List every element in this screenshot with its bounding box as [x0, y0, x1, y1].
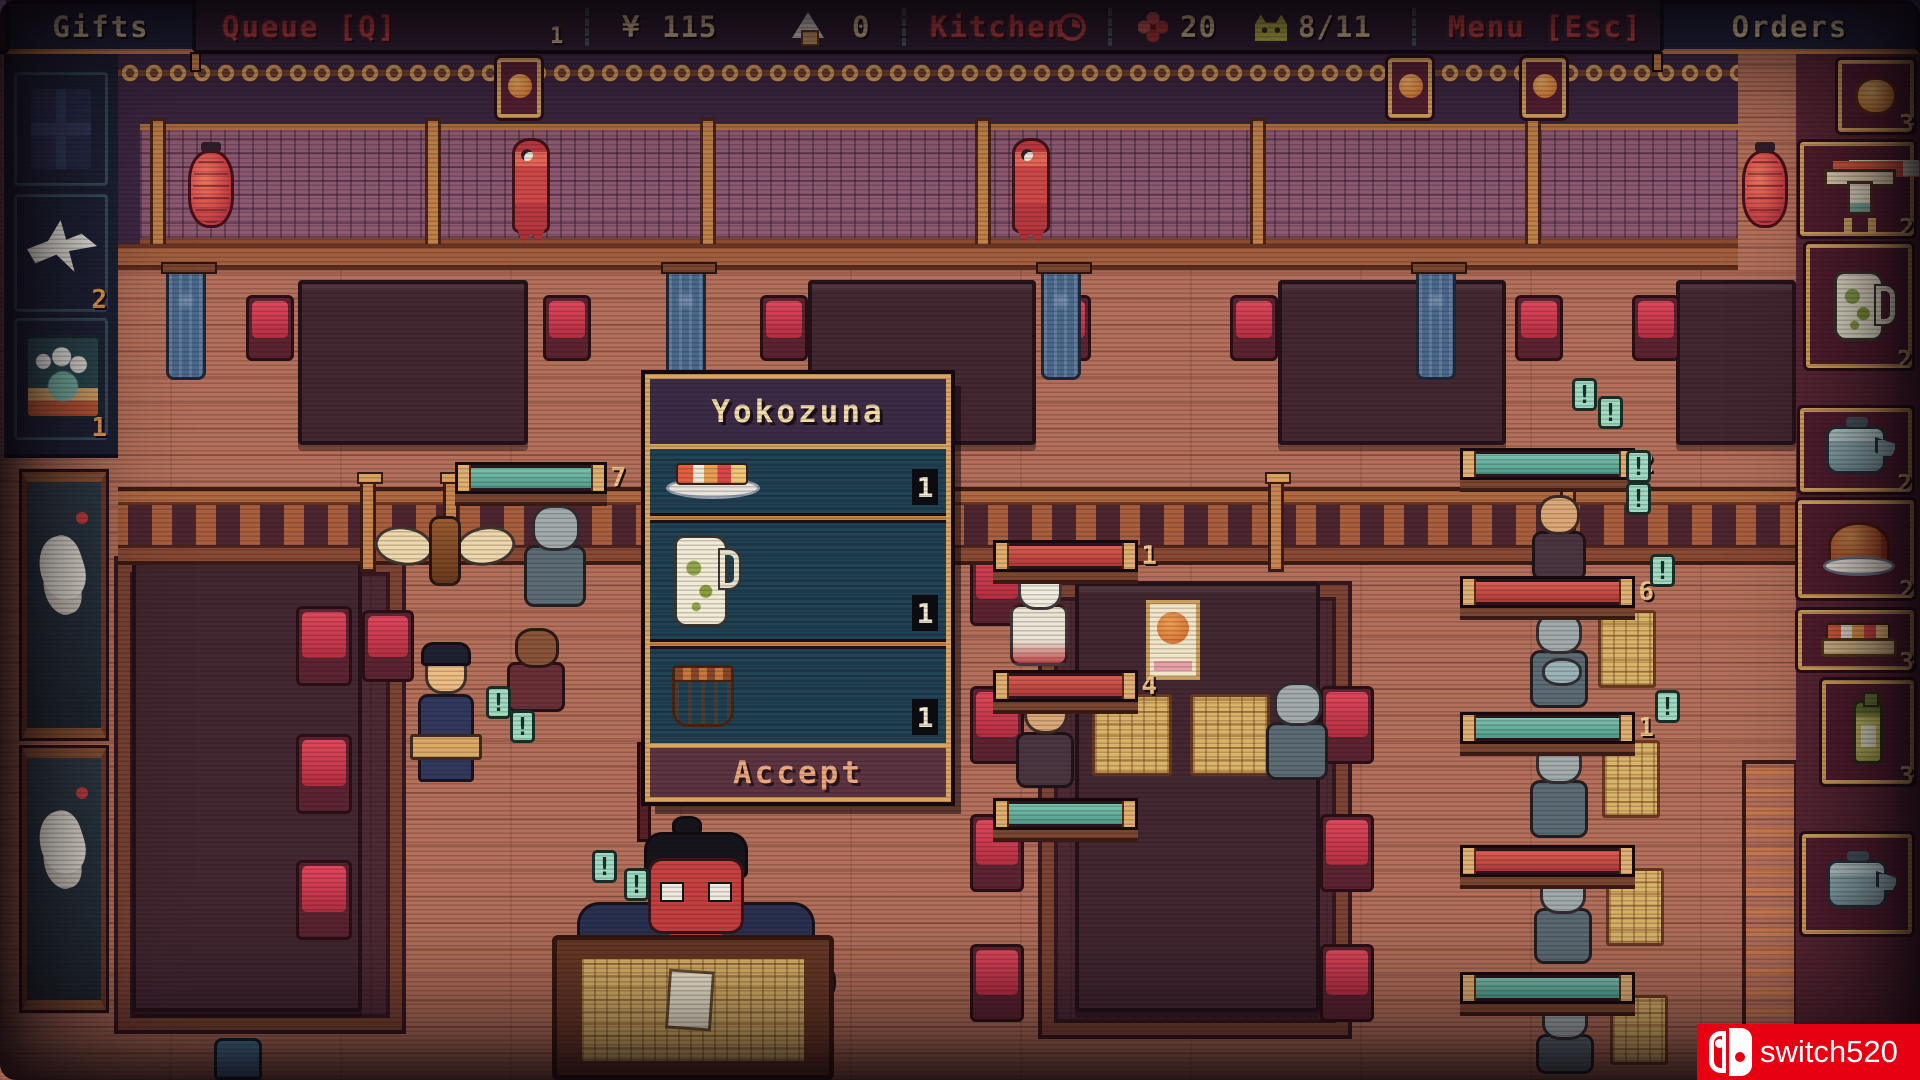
sushi-platter-icon: [1821, 623, 1891, 657]
tatami-mat: [1606, 868, 1664, 946]
red-chair: [296, 860, 352, 940]
red-chair: [246, 295, 294, 361]
tab-hook: [1652, 52, 1663, 72]
patience-bar: 1: [1460, 712, 1635, 744]
order-count: 2: [1899, 213, 1914, 242]
tab-hook: [190, 52, 201, 72]
divider: [1108, 8, 1112, 46]
tatami-mat: [1602, 740, 1660, 818]
queue-button[interactable]: Queue [Q]: [222, 10, 397, 44]
sake-bottle-icon: [1853, 700, 1883, 764]
counter-table: [1460, 972, 1635, 1004]
pitcher-icon: [1834, 271, 1884, 341]
boss-eye: [708, 882, 732, 902]
lattice-screen: [140, 124, 1738, 246]
wood-post: [425, 118, 441, 252]
tatami-mat: [1610, 995, 1668, 1065]
order-count: 3: [1899, 761, 1914, 790]
grey-oni-customer: [1262, 682, 1334, 782]
patience-bar: 4: [993, 670, 1138, 702]
order-item-row: 1: [650, 523, 946, 639]
exclamation-mark: !: [1572, 378, 1597, 411]
gift-slot-wave[interactable]: 1: [14, 318, 108, 440]
wood-post: [975, 118, 991, 252]
tatami-mat: [1092, 694, 1172, 776]
red-chair: [970, 944, 1024, 1022]
patience-value: 7: [610, 463, 626, 493]
serving-tray: [410, 734, 482, 760]
blue-curtain: [166, 268, 206, 380]
order-slot-teapot[interactable]: 2: [1800, 408, 1912, 492]
item-quantity: 1: [912, 469, 938, 505]
exclamation-mark: !: [1626, 450, 1651, 483]
divider: [902, 8, 906, 46]
exclamation-mark: !: [1598, 396, 1623, 429]
tab-orders[interactable]: Orders: [1660, 0, 1920, 54]
patience-bar: 2: [1460, 448, 1635, 480]
guest-face-icon: [1255, 14, 1287, 41]
order-slot-platter[interactable]: 3: [1798, 610, 1914, 670]
blue-curtain: [1041, 268, 1081, 380]
top-hud-bar: Gifts Queue [Q] 1 ¥ 115 0 Kitchen 20 8/1…: [0, 0, 1920, 54]
sushi-plate-icon: [666, 463, 754, 499]
grey-oni-customer: [1528, 742, 1592, 842]
order-item-row: 1: [650, 649, 946, 743]
tatami-mat: [1598, 610, 1656, 688]
row-divider: [650, 639, 946, 649]
mezzanine-ledge: [118, 244, 1738, 270]
bald-customer: [1012, 692, 1078, 792]
grey-oni-customer: [1528, 612, 1592, 712]
game-screen: 7 1 4 2 6 1: [0, 0, 1920, 1080]
order-count: 2: [1899, 575, 1914, 604]
gifts-panel: 2 1: [4, 54, 118, 458]
order-paper: [665, 968, 715, 1031]
dining-table: [1278, 280, 1506, 445]
kitchen-timer-icon: [1058, 13, 1086, 41]
wood-post: [700, 118, 716, 252]
queue-count: 1: [550, 24, 564, 49]
order-count: 2: [1897, 469, 1912, 498]
paper-crane-icon: [27, 215, 97, 277]
wood-post: [150, 118, 166, 252]
seats-value: 8/11: [1298, 10, 1372, 44]
blue-curtain: [666, 268, 706, 380]
red-lantern: [188, 150, 234, 228]
bun-icon: [1855, 77, 1897, 115]
red-chair: [362, 610, 414, 682]
wood-post: [1525, 118, 1541, 252]
bald-customer: [1530, 495, 1590, 583]
red-chair: [760, 295, 808, 361]
grey-oni-customer: [518, 505, 594, 615]
red-chair: [1320, 944, 1374, 1022]
counter-table: [993, 798, 1138, 830]
peach-frame: [497, 58, 541, 118]
fish-banner: [1012, 138, 1050, 234]
exclamation-mark: !: [624, 868, 649, 901]
dish-card: [1146, 600, 1200, 680]
order-slot-pitcher[interactable]: 2: [1806, 244, 1912, 368]
divider: [1412, 8, 1416, 46]
teapot-held: [1542, 658, 1582, 686]
sushi-stand-icon: [1824, 159, 1890, 219]
flower-icon: [1138, 12, 1168, 42]
exclamation-mark: !: [1650, 554, 1675, 587]
order-slot-bun[interactable]: 3: [1838, 60, 1914, 132]
row-divider: [650, 513, 946, 523]
peach-frame: [1522, 58, 1566, 118]
order-dialog: Yokozuna 1 1 1 Accept: [645, 374, 951, 802]
onigiri-count: 0: [852, 10, 870, 44]
order-dialog-title: Yokozuna: [650, 379, 946, 449]
gift-slot-box[interactable]: [14, 72, 108, 186]
grey-oni-customer: [1534, 1000, 1598, 1076]
red-chair: [296, 734, 352, 814]
order-count: 2: [1897, 345, 1912, 374]
watermark-text: switch520: [1760, 1034, 1898, 1070]
order-slot-teapot-2[interactable]: [1802, 834, 1912, 934]
gift-box-icon: [31, 89, 91, 169]
red-chair: [1320, 814, 1374, 892]
rail-post: [1268, 478, 1284, 572]
order-slot-bottle[interactable]: 3: [1822, 680, 1914, 784]
exclamation-mark: !: [510, 710, 535, 743]
orders-tab-label: Orders: [1732, 10, 1849, 44]
pitcher-icon: [674, 535, 728, 627]
item-quantity: 1: [912, 699, 938, 735]
red-lantern: [1742, 150, 1788, 228]
boss-eye: [660, 882, 684, 902]
divider: [585, 8, 589, 46]
boss-table: [552, 935, 834, 1080]
red-chair: [1230, 295, 1278, 361]
rail-post: [360, 478, 376, 572]
waiter-character[interactable]: [416, 638, 478, 790]
patience-bar: 6: [1460, 576, 1635, 608]
red-chair: [543, 295, 591, 361]
wood-post: [1250, 118, 1266, 252]
peach-frame: [1388, 58, 1432, 118]
order-slot-roast[interactable]: 2: [1798, 500, 1914, 598]
orders-panel: 3 2 2 2 2 3 3: [1796, 52, 1920, 1080]
exclamation-mark: !: [592, 850, 617, 883]
gifts-tab-label: Gifts: [52, 10, 149, 44]
red-chair: [296, 606, 352, 686]
tab-gifts[interactable]: Gifts: [6, 0, 196, 54]
red-chair: [1515, 295, 1563, 361]
dining-table: [1676, 280, 1796, 445]
chain-railing: [118, 56, 1738, 90]
red-chair: [1632, 295, 1680, 361]
teapot-icon: [1827, 860, 1887, 908]
fish-banner: [512, 138, 550, 234]
switch-logo-icon: [1729, 1028, 1752, 1076]
grey-oni-customer: [1532, 872, 1596, 968]
accept-button[interactable]: Accept: [650, 743, 946, 797]
blue-curtain: [1416, 268, 1456, 380]
kitchen-button[interactable]: Kitchen: [930, 10, 1066, 44]
gift-slot-crane[interactable]: 2: [14, 194, 108, 312]
patience-bar: 7: [455, 462, 607, 494]
moth-creature: [375, 512, 515, 604]
exclamation-mark: !: [1655, 690, 1680, 723]
patience-bar: 1: [993, 540, 1138, 572]
money-value: 115: [662, 10, 717, 44]
order-count: 3: [1899, 647, 1914, 676]
currency-icon: ¥: [622, 10, 640, 44]
exclamation-mark: !: [1626, 482, 1651, 515]
blue-stool: [214, 1038, 262, 1080]
crane-scroll-painting: [22, 472, 106, 738]
teapot-icon: [1826, 426, 1886, 474]
dining-table: [298, 280, 528, 445]
exclamation-mark: !: [486, 686, 511, 719]
crane-scroll-painting: [22, 748, 106, 1010]
item-quantity: 1: [912, 595, 938, 631]
flower-count: 20: [1180, 10, 1217, 44]
patience-value: 4: [1141, 671, 1157, 701]
gift-count: 2: [91, 285, 107, 315]
order-count: 3: [1899, 109, 1914, 138]
gift-count: 1: [91, 413, 107, 443]
order-item-row: 1: [650, 449, 946, 513]
clay-pot-icon: [672, 665, 734, 727]
switch-logo-icon: [1709, 1031, 1726, 1073]
patience-value: 1: [1638, 713, 1654, 743]
onigiri-icon: [792, 12, 824, 44]
armored-customer: [505, 628, 569, 714]
wave-art-icon: [25, 335, 101, 419]
counter-table: [1460, 845, 1635, 877]
watermark: switch520: [1697, 1024, 1920, 1080]
order-slot-stand[interactable]: 2: [1800, 142, 1914, 236]
roast-icon: [1823, 522, 1889, 576]
tatami-mat: [1190, 694, 1270, 776]
fox-customer: [1008, 562, 1072, 672]
patience-value: 1: [1141, 541, 1157, 571]
menu-button[interactable]: Menu [Esc]: [1448, 10, 1643, 44]
